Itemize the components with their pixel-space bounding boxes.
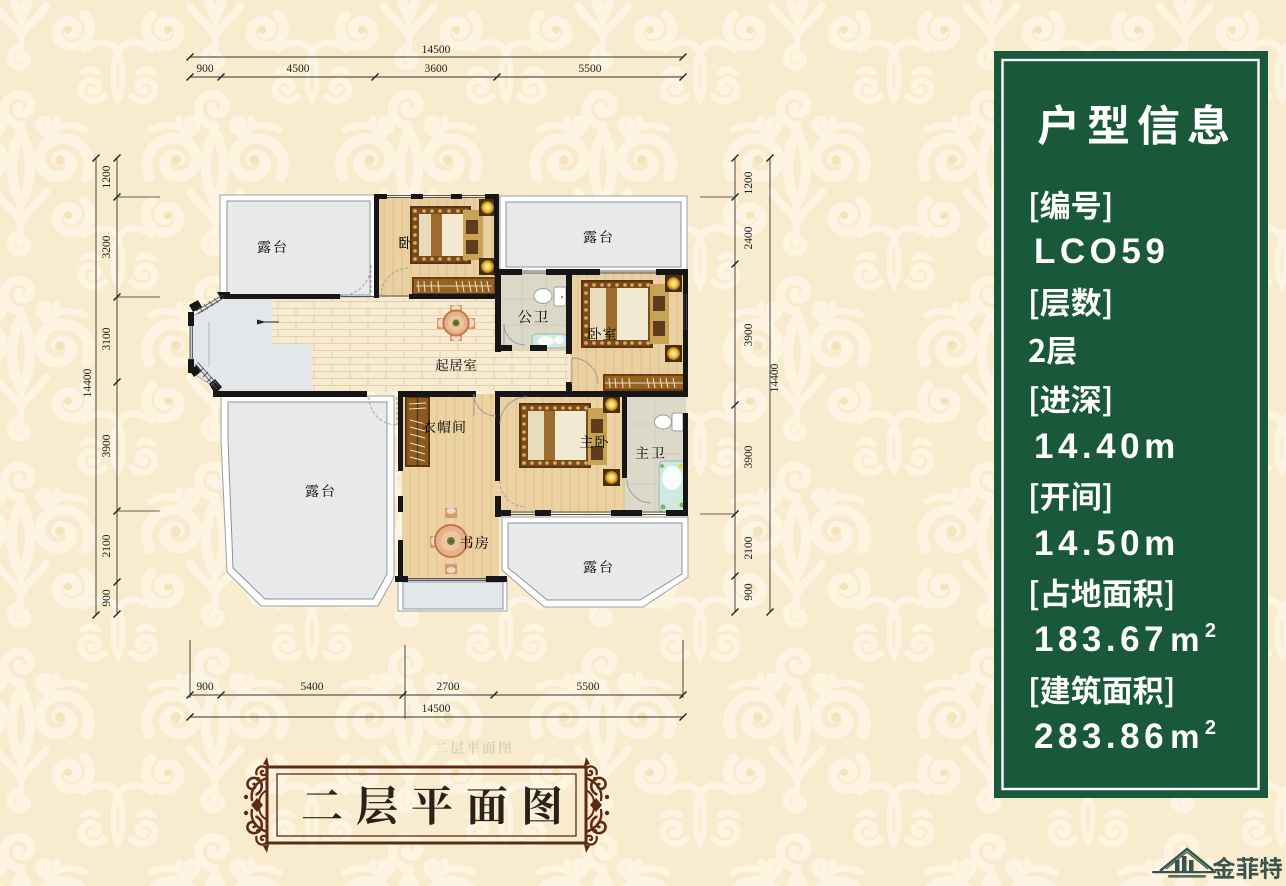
svg-text:14400: 14400 [769, 363, 781, 392]
svg-text:3900: 3900 [743, 323, 755, 346]
svg-text:5500: 5500 [579, 63, 602, 75]
svg-text:183.67m2: 183.67m2 [1034, 620, 1221, 659]
svg-text:3100: 3100 [101, 327, 113, 350]
svg-text:14500: 14500 [422, 703, 451, 715]
svg-text:3900: 3900 [101, 434, 113, 457]
svg-text:900: 900 [196, 681, 214, 693]
svg-text:5500: 5500 [577, 681, 600, 693]
svg-text:14.50m: 14.50m [1034, 524, 1180, 563]
svg-text:14500: 14500 [422, 44, 451, 56]
svg-text:3200: 3200 [101, 235, 113, 258]
svg-text:900: 900 [101, 589, 113, 607]
svg-text:2400: 2400 [743, 226, 755, 249]
svg-text:900: 900 [196, 63, 214, 75]
svg-text:LCO59: LCO59 [1034, 232, 1169, 271]
svg-text:900: 900 [743, 583, 755, 601]
svg-text:2100: 2100 [101, 534, 113, 557]
svg-text:3600: 3600 [425, 63, 448, 75]
svg-text:2100: 2100 [743, 536, 755, 559]
svg-text:1200: 1200 [743, 171, 755, 194]
svg-text:3900: 3900 [743, 445, 755, 468]
svg-text:4500: 4500 [287, 63, 310, 75]
svg-text:14.40m: 14.40m [1034, 427, 1180, 466]
svg-text:14400: 14400 [82, 368, 94, 397]
svg-text:1200: 1200 [101, 165, 113, 188]
svg-text:283.86m2: 283.86m2 [1034, 717, 1221, 756]
svg-text:5400: 5400 [301, 681, 324, 693]
svg-text:2700: 2700 [437, 681, 460, 693]
